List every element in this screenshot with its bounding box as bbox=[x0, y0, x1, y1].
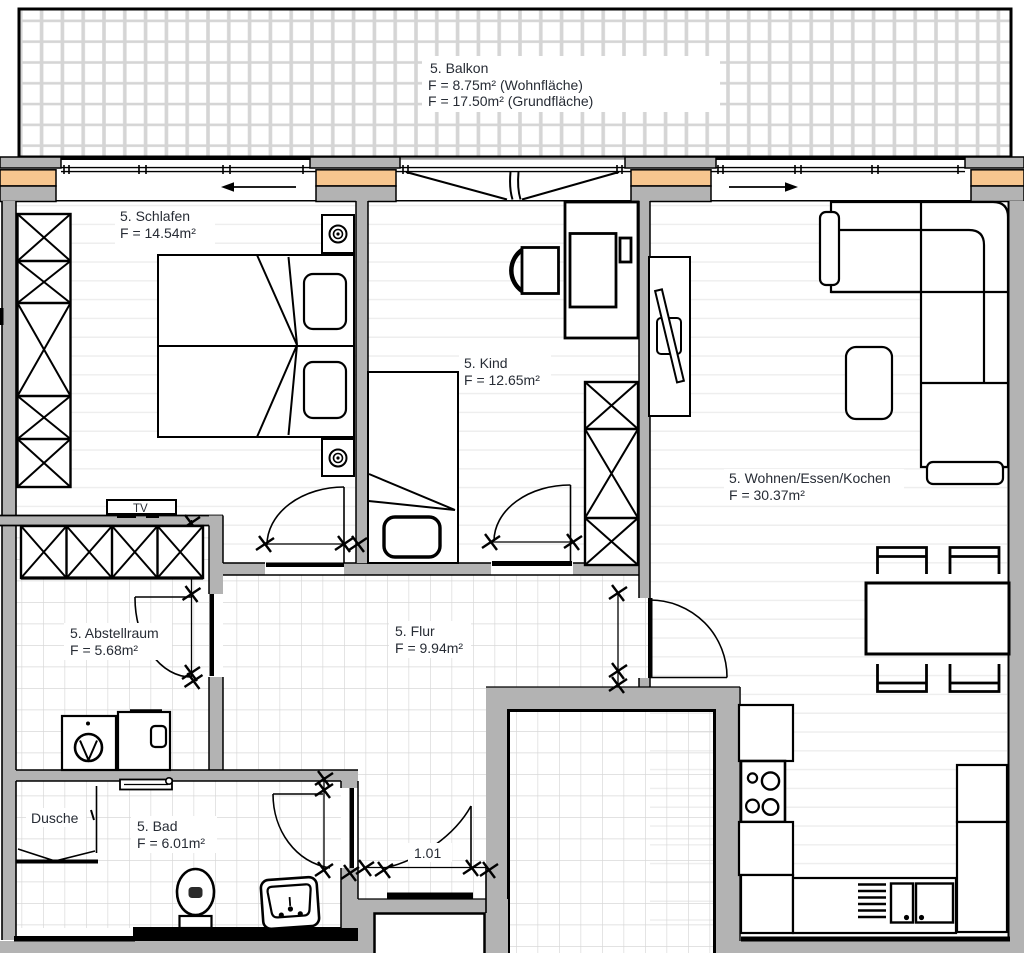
svg-text:F = 5.68m²: F = 5.68m² bbox=[70, 642, 138, 658]
svg-text:F = 8.75m² (Wohnfläche): F = 8.75m² (Wohnfläche) bbox=[428, 77, 583, 93]
svg-text:F = 17.50m² (Grundfläche): F = 17.50m² (Grundfläche) bbox=[428, 93, 593, 109]
svg-text:5. Balkon: 5. Balkon bbox=[430, 60, 488, 76]
svg-text:5. Kind: 5. Kind bbox=[464, 355, 508, 371]
svg-text:5. Bad: 5. Bad bbox=[137, 818, 177, 834]
svg-text:5. Wohnen/Essen/Kochen: 5. Wohnen/Essen/Kochen bbox=[729, 470, 891, 486]
svg-text:TV: TV bbox=[133, 503, 148, 515]
svg-text:F = 9.94m²: F = 9.94m² bbox=[395, 640, 463, 656]
svg-text:F = 14.54m²: F = 14.54m² bbox=[120, 225, 196, 241]
svg-text:F = 30.37m²: F = 30.37m² bbox=[729, 487, 805, 503]
svg-text:5. Flur: 5. Flur bbox=[395, 623, 435, 639]
svg-text:Dusche: Dusche bbox=[31, 810, 79, 826]
svg-text:1.01: 1.01 bbox=[414, 845, 441, 861]
svg-text:F = 6.01m²: F = 6.01m² bbox=[137, 835, 205, 851]
svg-text:F = 12.65m²: F = 12.65m² bbox=[464, 372, 540, 388]
svg-text:5. Abstellraum: 5. Abstellraum bbox=[70, 625, 159, 641]
svg-text:5. Schlafen: 5. Schlafen bbox=[120, 208, 190, 224]
